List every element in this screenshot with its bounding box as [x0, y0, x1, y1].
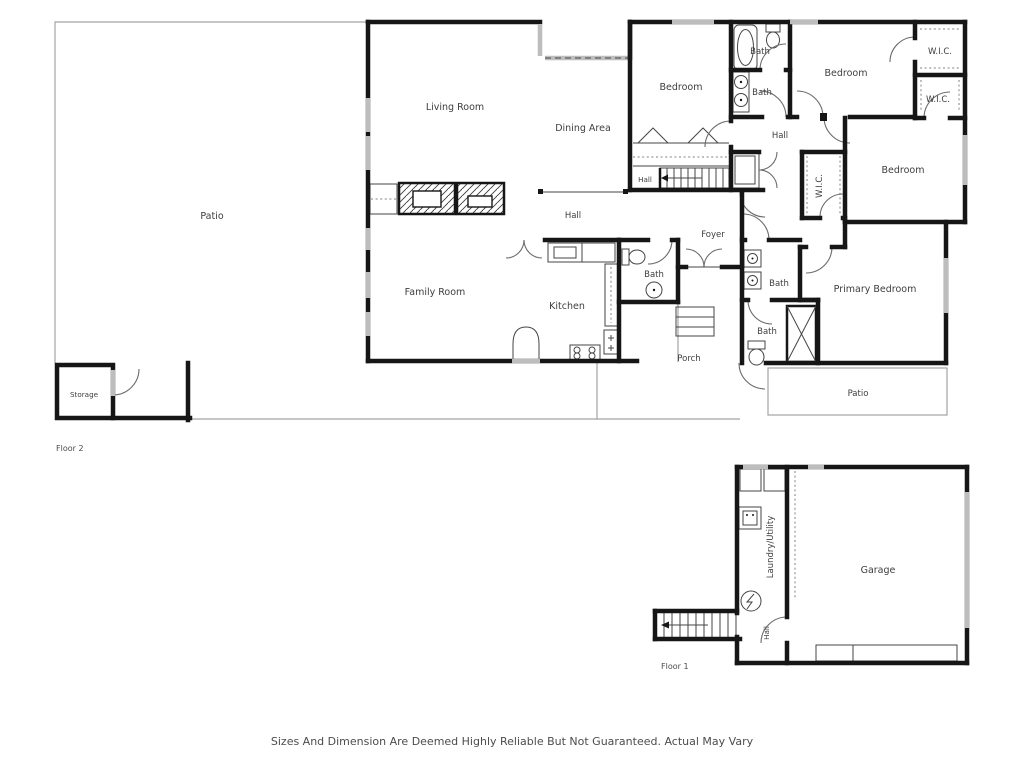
floor-plan-canvas: Patio Living Room Dining Area Bedroom Ba… [0, 0, 1024, 768]
room-label-garage: Garage [861, 565, 896, 576]
room-label-bath-4: Bath [769, 279, 789, 289]
room-label-hall-floor1: Hall [762, 626, 771, 640]
room-label-hall-main: Hall [565, 211, 581, 221]
floor1-label: Floor 1 [661, 662, 689, 671]
room-label-wic-2: W.I.C. [926, 95, 950, 105]
room-label-bath-5: Bath [757, 327, 777, 337]
room-label-porch: Porch [677, 354, 700, 364]
room-label-bath-1: Bath [750, 47, 770, 57]
floor2-label: Floor 2 [56, 444, 84, 453]
walls-floor1-layer [655, 467, 967, 663]
porch-steps [676, 307, 714, 336]
floor-plan-page: Patio Living Room Dining Area Bedroom Ba… [0, 0, 1024, 768]
room-label-bath-2: Bath [752, 88, 772, 98]
doors-layer [113, 37, 950, 643]
room-label-foyer: Foyer [701, 230, 725, 240]
room-label-bedroom-1: Bedroom [660, 82, 703, 93]
room-label-bedroom-2: Bedroom [825, 68, 868, 79]
room-label-dining-area: Dining Area [555, 123, 611, 134]
room-label-bath-3: Bath [644, 270, 664, 280]
room-label-bedroom-3: Bedroom [882, 165, 925, 176]
room-label-primary-bedroom: Primary Bedroom [834, 284, 917, 295]
room-label-patio-lower: Patio [848, 389, 869, 399]
room-label-storage: Storage [70, 390, 99, 399]
room-label-hall-stairs: Hall [638, 175, 652, 184]
room-label-wic-1: W.I.C. [928, 47, 952, 57]
room-label-living-room: Living Room [426, 102, 484, 113]
room-label-laundry-utility: Laundry/Utility [766, 516, 776, 579]
disclaimer-text: Sizes And Dimension Are Deemed Highly Re… [271, 735, 754, 748]
room-label-kitchen: Kitchen [549, 301, 585, 312]
walls-floor2-layer [57, 22, 965, 420]
room-label-patio-upper: Patio [200, 211, 223, 222]
room-label-hall-upper: Hall [772, 131, 788, 141]
room-label-family-room: Family Room [405, 287, 466, 298]
room-label-wic-3: W.I.C. [815, 174, 825, 198]
